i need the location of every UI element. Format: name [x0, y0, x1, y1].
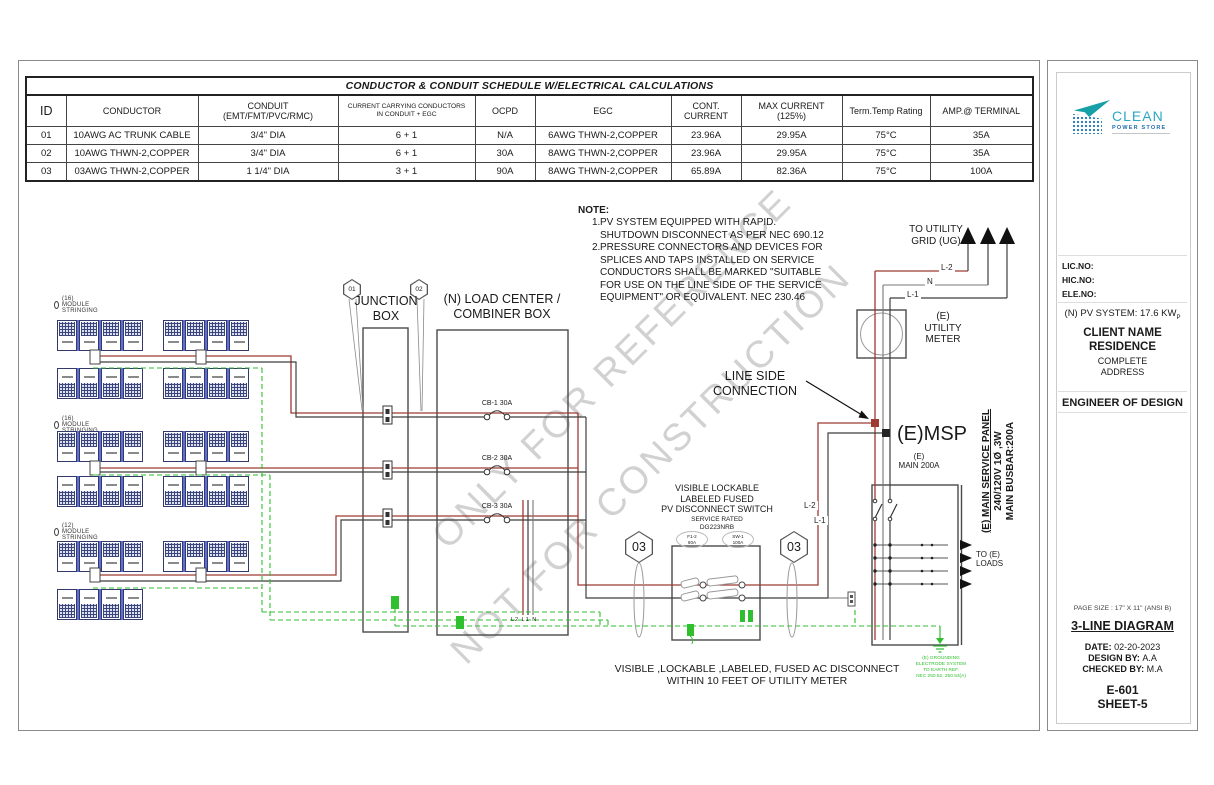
pv-module-cluster: [57, 431, 143, 462]
pv-module: [101, 541, 121, 572]
client-address: COMPLETE ADDRESS: [1058, 356, 1187, 378]
cb3-label: CB-3 30A: [468, 503, 526, 511]
sheet-number: E-601 SHEET-5: [1058, 683, 1187, 711]
module-string-label: (16) MODULE STRINGING: [54, 296, 101, 314]
license-numbers: LIC.NO: HIC.NO: ELE.NO:: [1062, 259, 1096, 301]
lc-wire-label: L2 L1 N: [511, 617, 537, 623]
line-side-connection-label: LINE SIDE CONNECTION: [703, 369, 807, 399]
col-conductor: CONDUCTOR: [66, 95, 198, 127]
pv-module: [57, 589, 77, 620]
string-marker-icon: [54, 528, 59, 536]
pv-module: [101, 476, 121, 507]
col-max-current: MAX CURRENT (125%): [741, 95, 842, 127]
pv-module: [57, 320, 77, 351]
load-center-label: (N) LOAD CENTER / COMBINER BOX: [428, 292, 576, 322]
pv-module: [123, 431, 143, 462]
pv-module: [57, 368, 77, 399]
service-panel-vertical-label: (E) MAIN SERVICE PANEL 240/120V 1Ø ,3W M…: [981, 392, 1017, 550]
msp-label: (E)MSP: [897, 423, 967, 447]
pv-module: [163, 476, 183, 507]
pv-module: [79, 476, 99, 507]
sheet-title: 3-LINE DIAGRAM: [1058, 619, 1187, 633]
pv-module: [101, 320, 121, 351]
riser-l1-label: L-1: [812, 516, 828, 525]
pv-module-cluster: [163, 320, 249, 351]
pv-module: [163, 320, 183, 351]
switch-rating-callout: SW-1 100A: [722, 531, 754, 548]
pv-module: [163, 368, 183, 399]
pv-module: [79, 368, 99, 399]
hic-no: HIC.NO:: [1062, 273, 1096, 287]
col-id: ID: [26, 95, 66, 127]
pv-module: [123, 541, 143, 572]
col-amp-terminal: AMP.@ TERMINAL: [930, 95, 1033, 127]
pv-module-cluster: [163, 431, 249, 462]
grounding-note: (E) GROUNDING ELECTRODE SYSTEM TO EARTH …: [903, 656, 979, 680]
ac-disconnect-note: VISIBLE ,LOCKABLE ,LABELED, FUSED AC DIS…: [612, 663, 902, 688]
pv-module: [229, 431, 249, 462]
pv-module: [207, 476, 227, 507]
note-item: 1. PV SYSTEM EQUIPPED WITH RAPID. SHUTDO…: [578, 217, 878, 242]
pv-module: [123, 476, 143, 507]
pv-module: [229, 320, 249, 351]
pv-module: [207, 320, 227, 351]
disconnect-title: VISIBLE LOCKABLE LABELED FUSED PV DISCON…: [653, 483, 781, 515]
clean-power-store-logo: CLEAN POWER STORE: [1072, 100, 1172, 134]
ele-no: ELE.NO:: [1062, 287, 1096, 301]
pv-module: [123, 368, 143, 399]
pv-module: [207, 368, 227, 399]
pv-module: [229, 476, 249, 507]
pv-module: [229, 541, 249, 572]
disconnect-subtitle: SERVICE RATED: [653, 516, 781, 524]
pv-module: [79, 431, 99, 462]
note-block: NOTE: 1. PV SYSTEM EQUIPPED WITH RAPID. …: [578, 205, 878, 305]
pv-module: [57, 431, 77, 462]
col-ocpd: OCPD: [475, 95, 535, 127]
pv-module: [185, 368, 205, 399]
string-marker-icon: [54, 301, 59, 309]
junction-box-label: JUNCTION BOX: [350, 294, 422, 324]
pv-module: [123, 589, 143, 620]
pv-module: [185, 320, 205, 351]
table-title: CONDUCTOR & CONDUIT SCHEDULE W/ELECTRICA…: [26, 77, 1033, 95]
riser-l2-label: L-2: [802, 501, 818, 510]
page-size: PAGE SIZE : 17" X 11" (ANSI B): [1058, 605, 1187, 612]
sheet-meta: DATE: 02-20-2023 DESIGN BY: A.A CHECKED …: [1058, 642, 1187, 675]
pv-module: [229, 368, 249, 399]
cb1-label: CB-1 30A: [468, 400, 526, 408]
msp-main-label: (E) MAIN 200A: [892, 452, 946, 471]
pv-module: [79, 320, 99, 351]
pv-module-cluster: [57, 589, 143, 620]
logo-name: CLEAN: [1112, 108, 1172, 124]
fuse-rating-callout: F1-2 60A: [676, 531, 708, 548]
string-marker-icon: [54, 421, 59, 429]
col-egc: EGC: [535, 95, 671, 127]
pv-module-cluster: [163, 541, 249, 572]
to-loads-label: TO (E) LOADS: [976, 550, 1003, 569]
table-row: 0110AWG AC TRUNK CABLE 3/4" DIA6 + 1 N/A…: [26, 127, 1033, 145]
to-utility-grid-label: TO UTILITY GRID (UG): [899, 224, 973, 248]
table-row: 0210AWG THWN-2,COPPER 3/4" DIA6 + 1 30A8…: [26, 145, 1033, 163]
grid-l1-label: L-1: [905, 290, 921, 299]
module-string-label: (12) MODULE STRINGING: [54, 523, 101, 541]
pv-module-cluster: [57, 476, 143, 507]
col-ccc: CURRENT CARRYING CONDUCTORS IN CONDUIT +…: [338, 95, 475, 127]
pv-module: [101, 368, 121, 399]
pv-module: [101, 431, 121, 462]
client-name: CLIENT NAME RESIDENCE: [1058, 326, 1187, 354]
pv-module-cluster: [57, 541, 143, 572]
note-item: 2. PRESSURE CONNECTORS AND DEVICES FOR S…: [578, 242, 878, 305]
cb2-label: CB-2 30A: [468, 455, 526, 463]
pv-module: [185, 476, 205, 507]
lic-no: LIC.NO:: [1062, 259, 1096, 273]
logo-mark-icon: [1072, 100, 1108, 134]
utility-meter-label: (E) UTILITY METER: [914, 311, 972, 346]
col-conduit: CONDUIT (EMT/FMT/PVC/RMC): [198, 95, 338, 127]
pv-module: [185, 431, 205, 462]
pv-module: [207, 431, 227, 462]
pv-module: [163, 541, 183, 572]
grid-l2-label: L-2: [939, 263, 955, 272]
pv-module: [79, 589, 99, 620]
pv-system-size: (N) PV SYSTEM: 17.6 KWP: [1058, 308, 1187, 321]
pv-module: [57, 541, 77, 572]
conductor-schedule-table: CONDUCTOR & CONDUIT SCHEDULE W/ELECTRICA…: [25, 76, 1034, 182]
pv-module: [207, 541, 227, 572]
col-cont-current: CONT. CURRENT: [671, 95, 741, 127]
pv-module-cluster: [57, 368, 143, 399]
pv-module: [163, 431, 183, 462]
pv-module-cluster: [163, 368, 249, 399]
note-heading: NOTE:: [578, 205, 878, 216]
logo-tagline: POWER STORE: [1112, 125, 1172, 131]
table-row: 0303AWG THWN-2,COPPER 1 1/4" DIA3 + 1 90…: [26, 163, 1033, 182]
pv-module: [123, 320, 143, 351]
grid-n-label: N: [925, 277, 935, 286]
pv-module: [101, 589, 121, 620]
pv-module-cluster: [57, 320, 143, 351]
pv-module: [79, 541, 99, 572]
disconnect-model: DG223NRB: [653, 524, 781, 532]
pv-module-cluster: [163, 476, 249, 507]
drawing-sheet: { "table": { "title": "CONDUCTOR & CONDU…: [0, 0, 1214, 785]
engineer-of-design: ENGINEER OF DESIGN: [1058, 397, 1187, 409]
col-temp-rating: Term.Temp Rating: [842, 95, 930, 127]
table-header-row: ID CONDUCTOR CONDUIT (EMT/FMT/PVC/RMC) C…: [26, 95, 1033, 127]
pv-module: [185, 541, 205, 572]
pv-module: [57, 476, 77, 507]
